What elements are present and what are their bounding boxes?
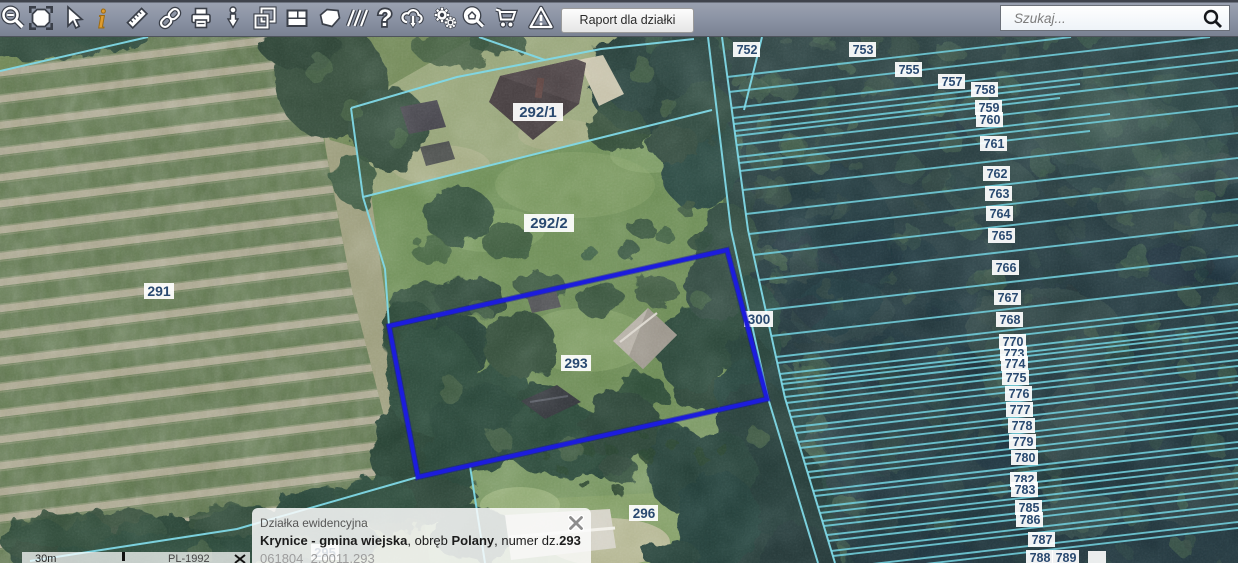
svg-text:755: 755 [899, 63, 920, 77]
svg-text:780: 780 [1015, 451, 1036, 465]
svg-text:?: ? [378, 5, 393, 32]
svg-text:776: 776 [1009, 387, 1030, 401]
svg-text:292/1: 292/1 [519, 104, 557, 121]
svg-text:767: 767 [998, 291, 1019, 305]
svg-text:293: 293 [564, 355, 588, 371]
svg-text:786: 786 [1020, 513, 1041, 527]
svg-text:300: 300 [748, 312, 771, 327]
svg-text:779: 779 [1013, 435, 1034, 449]
svg-text:778: 778 [1012, 419, 1033, 433]
svg-text:753: 753 [853, 43, 874, 57]
svg-text:768: 768 [1000, 313, 1021, 327]
svg-text:758: 758 [975, 83, 996, 97]
svg-text:760: 760 [980, 113, 1001, 127]
svg-text:775: 775 [1006, 371, 1027, 385]
svg-text:292/2: 292/2 [530, 215, 568, 232]
svg-text:774: 774 [1005, 357, 1026, 371]
svg-text:764: 764 [990, 207, 1011, 221]
svg-text:761: 761 [984, 137, 1005, 151]
svg-text:752: 752 [737, 43, 758, 57]
svg-text:788: 788 [1030, 551, 1051, 563]
svg-text:757: 757 [942, 75, 963, 89]
svg-text:787: 787 [1032, 533, 1053, 547]
svg-text:296: 296 [633, 506, 656, 521]
svg-text:i: i [98, 4, 106, 34]
svg-text:783: 783 [1015, 483, 1036, 497]
svg-text:763: 763 [989, 187, 1010, 201]
svg-text:765: 765 [992, 229, 1013, 243]
svg-text:777: 777 [1010, 403, 1031, 417]
svg-text:766: 766 [996, 261, 1017, 275]
svg-text:291: 291 [147, 283, 171, 299]
svg-text:789: 789 [1056, 551, 1077, 563]
svg-text:762: 762 [987, 167, 1008, 181]
